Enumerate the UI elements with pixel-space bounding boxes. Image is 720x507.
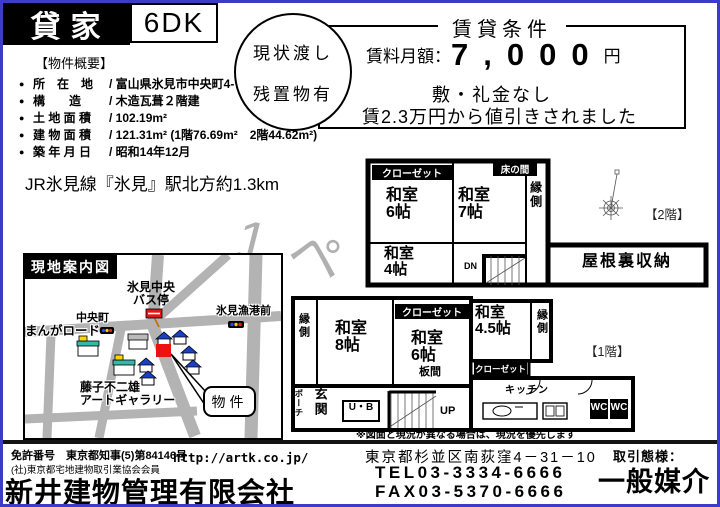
- rental-terms-box: 賃貸条件 賃料月額：7,000円 敷・礼金なし 賃2.3万円から値引きされました: [318, 25, 686, 129]
- bullet-icon: ●: [19, 110, 33, 127]
- disclaimer-note: ※図面と現況が異なる場合は、現況を優先します: [356, 426, 576, 441]
- property-callout: 物件: [203, 386, 256, 417]
- access-info: JR氷見線『氷見』駅北方約1.3km: [25, 170, 279, 195]
- shop-icon: [77, 336, 99, 356]
- room-label-up: UP: [440, 406, 455, 418]
- room-label-closet-1f-bottom: クローゼット: [474, 362, 527, 375]
- house-icon: [138, 358, 154, 372]
- bullet-icon: ●: [19, 76, 33, 93]
- traffic-light-icon: [228, 321, 244, 328]
- property-type-badge: 貸家: [3, 3, 130, 45]
- location-map: 現地案内図: [23, 253, 283, 440]
- room-label-engawa-1f-left: 縁側: [297, 313, 309, 357]
- handover-line2: 残置物有: [253, 80, 333, 105]
- room-label-washitsu6-1f: 和室 6帖: [411, 331, 443, 365]
- map-label-fishing-port: 氷見漁港前: [216, 306, 271, 318]
- shop-icon: [113, 355, 135, 375]
- rent-unit: 円: [604, 47, 621, 66]
- bullet-icon: ●: [19, 93, 33, 110]
- rent-row: 賃料月額：7,000円: [366, 37, 621, 73]
- room-label-washitsu45: 和室 4.5帖: [475, 305, 511, 337]
- discount-note: 賃2.3万円から値引きされました: [362, 103, 637, 129]
- rent-value: 7,000: [451, 37, 604, 72]
- house-icon: [172, 330, 188, 344]
- handover-line1: 現状渡し: [253, 39, 333, 64]
- license-number: 免許番号 東京都知事(5)第84146号: [11, 447, 187, 463]
- room-label-closet-1f-top: クローゼット: [395, 304, 469, 319]
- compass-icon: [599, 170, 623, 220]
- room-label-closet-2f: クローゼット: [372, 165, 452, 180]
- phone-number: TEL03-3334-6666: [375, 463, 565, 483]
- bullet-icon: ●: [19, 144, 33, 161]
- room-label-washitsu8: 和室 8帖: [335, 321, 367, 355]
- overview-row-building-area: ● 建 物 面 積 / 121.31m² (1階76.69m² 2階44.62m…: [19, 127, 319, 144]
- room-label-dn: DN: [464, 262, 477, 271]
- floor-plan-2f: クローゼット 床の間 和室 6帖 和室 7帖 和室 4帖 縁側 DN 屋根裏収納…: [358, 150, 714, 294]
- footer-separator: [3, 440, 717, 444]
- property-marker: [156, 344, 171, 357]
- room-label-engawa-2f: 縁側: [529, 181, 542, 227]
- rental-flyer-page: 1 ペ 貸家 6DK 賃貸条件 賃料月額：7,000円 敷・礼金なし 賃2.3万…: [0, 0, 720, 507]
- house-icon: [181, 346, 197, 360]
- room-label-wc2: WC: [610, 403, 628, 414]
- room-label-tokonoma: 床の間: [493, 162, 537, 176]
- company-url: http://artk.co.jp/: [173, 450, 308, 465]
- overview-row-built-date: ● 築 年 月 日 / 昭和14年12月: [19, 144, 319, 161]
- room-label-genkan: 玄関: [313, 387, 327, 423]
- dealing-type-value: 一般媒介: [598, 460, 710, 499]
- floor-caption-1f: 【1階】: [585, 341, 629, 360]
- map-label-manga-road: まんがロード: [25, 325, 100, 339]
- stove-icon: [543, 403, 567, 419]
- room-label-itanoma: 板間: [419, 367, 441, 379]
- room-label-washitsu7: 和室 7帖: [458, 188, 490, 222]
- map-label-gallery: 藤子不二雄 アートギャラリー: [80, 381, 175, 407]
- rent-label: 賃料月額：: [366, 47, 451, 66]
- fax-number: FAX03-5370-6666: [375, 482, 566, 502]
- map-label-bus-stop: 氷見中央 バス停: [121, 281, 181, 307]
- room-label-wc1: WC: [590, 403, 608, 414]
- room-label-engawa-1f-right: 縁側: [535, 309, 547, 353]
- room-label-attic: 屋根裏収納: [548, 254, 706, 271]
- shop-icon: [128, 334, 148, 349]
- traffic-light-icon: [100, 327, 114, 334]
- room-label-washitsu6-2f: 和室 6帖: [386, 188, 418, 222]
- floor-plan-1f: 縁側 和室 8帖 クローゼット 和室 6帖 板間 和室 4.5帖 縁側 クローゼ…: [287, 293, 643, 435]
- company-name: 新井建物管理有限会社: [5, 471, 295, 507]
- floor-caption-2f: 【2階】: [645, 204, 689, 223]
- room-label-porch: ポーチ: [294, 389, 303, 427]
- room-label-ub: U・B: [345, 403, 377, 414]
- layout-badge: 6DK: [130, 3, 218, 43]
- room-label-kitchen: キッチン: [505, 386, 549, 397]
- handover-circle-note: 現状渡し 残置物有: [234, 13, 352, 131]
- bullet-icon: ●: [19, 127, 33, 144]
- room-label-washitsu4: 和室 4帖: [384, 246, 414, 278]
- kitchen-sink-icon: [483, 403, 537, 419]
